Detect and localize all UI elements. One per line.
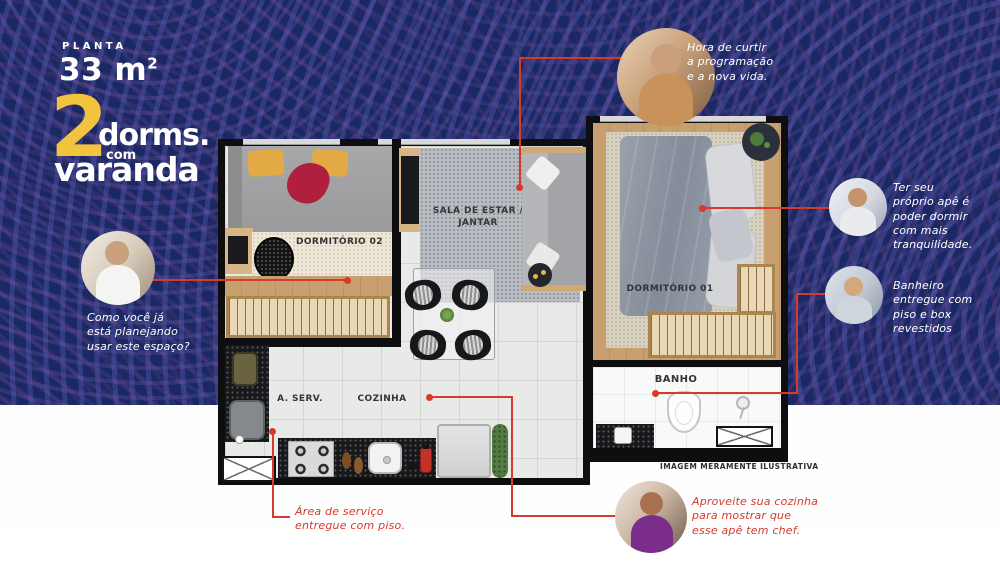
person-body (631, 515, 673, 553)
connector-dot (516, 184, 523, 191)
dorm2-closet (226, 296, 390, 338)
dorm1-plant-table (742, 123, 780, 161)
laundry-basket (232, 352, 258, 386)
connector-dot (699, 205, 706, 212)
banho-label: BANHO (644, 374, 708, 385)
photo-woman-cooking (615, 481, 687, 553)
aserv-label: A. SERV. (272, 394, 328, 404)
photo-woman-showering (825, 266, 883, 324)
connector-line (520, 57, 621, 59)
shaft-box (222, 456, 276, 482)
side-table (528, 263, 552, 287)
dorm2-label: DORMITÓRIO 02 (296, 237, 376, 247)
note-line: entregue com piso. (295, 519, 405, 533)
disclaimer-text: IMAGEM MERAMENTE ILUSTRATIVA (660, 462, 818, 471)
connector-dot (426, 394, 433, 401)
note-planning: Como você já está planejando usar este e… (87, 311, 190, 354)
note-line: usar este espaço? (87, 340, 190, 354)
note-line: com mais (893, 224, 972, 238)
toilet (667, 391, 701, 433)
sala-label-line2: JANTAR (424, 217, 532, 229)
window-dorm2 (243, 139, 340, 145)
dorm2-desk-chair (228, 236, 248, 264)
note-service: Área de serviço entregue com piso. (295, 505, 405, 534)
dorm1-closet (737, 264, 775, 314)
fire-extinguisher (420, 447, 432, 473)
note-line: Banheiro (893, 279, 972, 293)
bathroom-sink (614, 427, 632, 444)
refrigerator (437, 424, 491, 478)
person-head (105, 241, 129, 265)
connector-line (152, 279, 348, 281)
area-exponent: 2 (147, 55, 158, 73)
table-plant (440, 308, 454, 322)
note-line: está planejando (87, 325, 190, 339)
connector-line (798, 293, 827, 295)
cozinha-label: COZINHA (350, 394, 414, 404)
connector-line (796, 293, 798, 394)
note-bath: Banheiro entregue com piso e box revesti… (893, 279, 972, 336)
flyer-canvas: PLANTA 33 m2 2 dorms. com varanda DORMIT… (0, 0, 1000, 562)
note-line: Aproveite sua cozinha (692, 495, 818, 509)
note-line: piso e box (893, 308, 972, 322)
connector-line (272, 516, 290, 518)
note-line: Hora de curtir (687, 41, 773, 55)
tv-screen (401, 156, 419, 224)
note-tv: Hora de curtir a programação e a nova vi… (687, 41, 773, 84)
kitchen-sink (368, 442, 402, 474)
counter-drain (408, 462, 417, 471)
note-line: entregue com (893, 293, 972, 307)
shower-head (736, 396, 750, 410)
shower-box (716, 426, 773, 447)
sala-label: SALA DE ESTAR /JANTAR (424, 205, 532, 229)
note-line: próprio apê é (893, 195, 972, 209)
note-line: revestidos (893, 322, 972, 336)
kitchen-plant (492, 424, 508, 478)
person-head (844, 277, 863, 296)
person-body (639, 74, 693, 126)
connector-dot (344, 277, 351, 284)
note-line: Como você já (87, 311, 190, 325)
connector-dot (269, 428, 276, 435)
person-head (651, 44, 681, 74)
sala-label-line1: SALA DE ESTAR / (424, 205, 532, 217)
person-head (848, 188, 867, 207)
connector-line (430, 396, 513, 398)
person-head (640, 492, 663, 515)
dorm2-egg-chair (254, 237, 294, 281)
dorm1-label: DORMITÓRIO 01 (618, 284, 722, 294)
connector-line (272, 431, 274, 518)
note-line: tranquilidade. (893, 238, 972, 252)
person-body (840, 207, 876, 236)
logo-word-varanda: varanda (54, 150, 199, 189)
dorm2-bed-headboard (228, 146, 242, 233)
connector-line (519, 57, 521, 187)
note-line: esse apê tem chef. (692, 524, 818, 538)
note-line: para mostrar que (692, 509, 818, 523)
stove-cooktop (288, 441, 334, 477)
connector-line (656, 392, 798, 394)
connector-line (513, 515, 617, 517)
connector-dot (652, 390, 659, 397)
planta-label: PLANTA (62, 41, 127, 52)
wooden-utensils (342, 452, 351, 469)
dorm2-pillow (247, 149, 284, 177)
photo-woman-sleeping (829, 178, 887, 236)
note-chef: Aproveite sua cozinha para mostrar que e… (692, 495, 818, 538)
note-sleep: Ter seu próprio apê é poder dormir com m… (893, 181, 972, 252)
note-line: Área de serviço (295, 505, 405, 519)
laundry-tank (229, 400, 265, 440)
person-body (96, 265, 140, 305)
photo-woman-on-call-laptop (81, 231, 155, 305)
note-line: poder dormir (893, 210, 972, 224)
connector-line (511, 397, 513, 517)
note-line: a programação (687, 55, 773, 69)
sofa-frame (522, 285, 586, 291)
person-body (836, 296, 872, 324)
dorm1-closet (648, 312, 776, 358)
note-line: e a nova vida. (687, 70, 773, 84)
connector-line (702, 207, 830, 209)
note-line: Ter seu (893, 181, 972, 195)
